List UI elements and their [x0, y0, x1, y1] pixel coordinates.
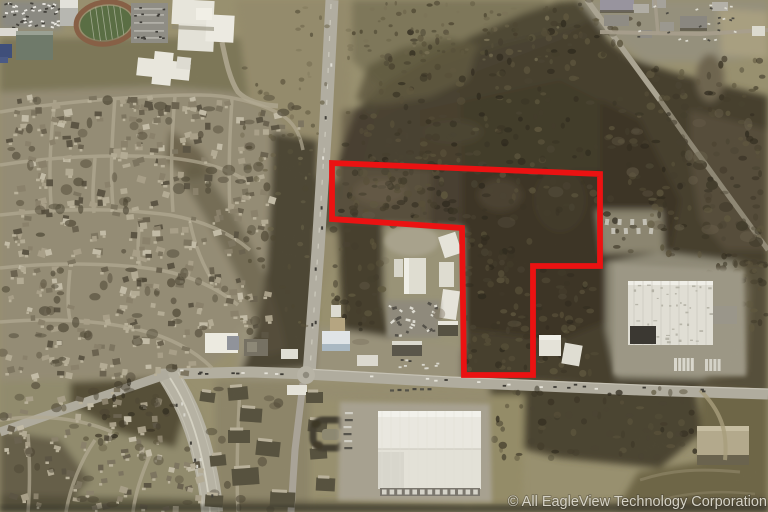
svg-text:© All EagleView Technology Cor: © All EagleView Technology Corporation [508, 494, 767, 510]
